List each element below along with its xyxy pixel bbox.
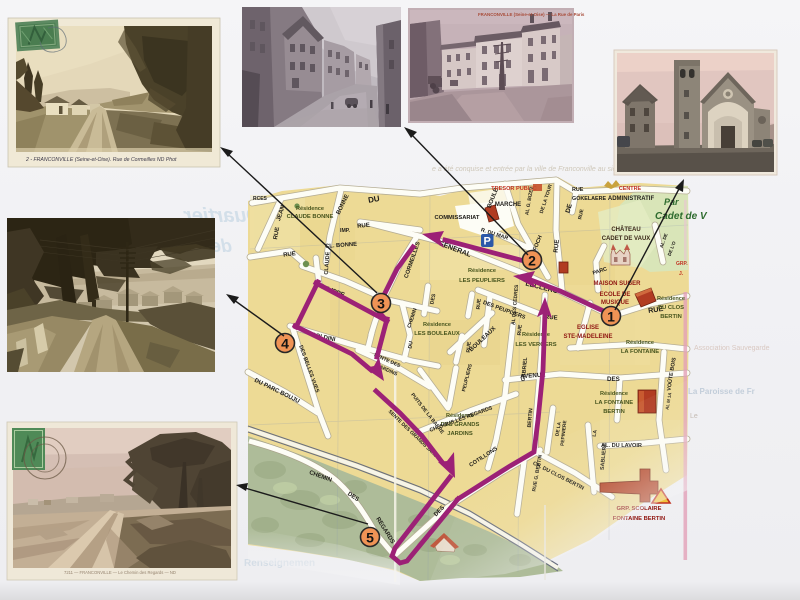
svg-text:CADET DE VAUX: CADET DE VAUX [602,236,651,242]
svg-text:RUE: RUE [466,341,473,353]
svg-text:CHÂTEAU: CHÂTEAU [611,226,640,233]
svg-text:3: 3 [377,296,385,312]
svg-text:LES VERGERS: LES VERGERS [515,342,556,348]
svg-text:ADMINISTRATIF: ADMINISTRATIF [608,196,655,202]
svg-text:LES BOULEAUX: LES BOULEAUX [414,331,460,337]
svg-text:DES: DES [607,376,620,383]
svg-text:STE-MADELEINE: STE-MADELEINE [563,334,612,340]
svg-text:LA FONTAINE: LA FONTAINE [621,349,659,355]
svg-text:RUE: RUE [517,324,524,336]
svg-text:4: 4 [281,336,289,352]
svg-text:FRANCONVILLE (Seine-et-Oise): FRANCONVILLE (Seine-et-Oise) — La Rue de… [478,12,585,17]
svg-text:5: 5 [366,530,374,546]
svg-text:MARCHE: MARCHE [495,202,521,208]
svg-text:EGLISE: EGLISE [577,325,599,331]
svg-text:GOKELAERE: GOKELAERE [572,196,607,202]
svg-text:Le: Le [690,413,698,420]
svg-text:La Paroisse de Fr: La Paroisse de Fr [688,387,755,396]
svg-text:Résidence: Résidence [468,268,496,274]
svg-text:2 - FRANCONVILLE (Seine-et-Ois: 2 - FRANCONVILLE (Seine-et-Oise). Rue de… [25,157,177,163]
svg-text:Résidence: Résidence [657,296,685,302]
svg-text:COMMISSARIAT: COMMISSARIAT [435,215,480,221]
svg-text:Résidence: Résidence [423,322,451,328]
svg-text:Association Sauvegarde: Association Sauvegarde [694,345,770,352]
svg-text:RUE: RUE [572,187,584,193]
svg-text:RUE: RUE [553,239,561,253]
svg-text:LA FONTAINE: LA FONTAINE [595,400,633,406]
svg-text:JARDINS: JARDINS [447,431,473,437]
svg-text:MUSIQUE: MUSIQUE [601,300,629,306]
svg-text:Résidence: Résidence [600,391,628,397]
svg-text:GRP.: GRP. [676,261,688,267]
svg-text:J.: J. [679,271,684,277]
svg-text:Résidence: Résidence [626,340,654,346]
svg-text:7211 — FRANCONVILLE — Le Chemi: 7211 — FRANCONVILLE — Le Chemin des Rega… [64,570,176,575]
svg-text:CENTRE: CENTRE [619,186,642,192]
svg-text:P: P [484,236,491,248]
svg-text:2: 2 [528,253,536,269]
svg-text:LES PEUPLIERS: LES PEUPLIERS [459,278,505,284]
svg-text:Résidence: Résidence [296,206,324,212]
svg-text:DU CLOS: DU CLOS [658,305,684,311]
svg-text:BERTIN: BERTIN [660,314,682,320]
svg-text:MAISON SUGER: MAISON SUGER [593,281,641,287]
svg-text:ECOLE DE: ECOLE DE [600,292,631,298]
svg-text:RCES: RCES [253,196,268,202]
svg-text:1: 1 [607,309,615,325]
svg-text:RUE: RUE [476,298,483,310]
svg-text:IMP.: IMP. [340,228,351,234]
